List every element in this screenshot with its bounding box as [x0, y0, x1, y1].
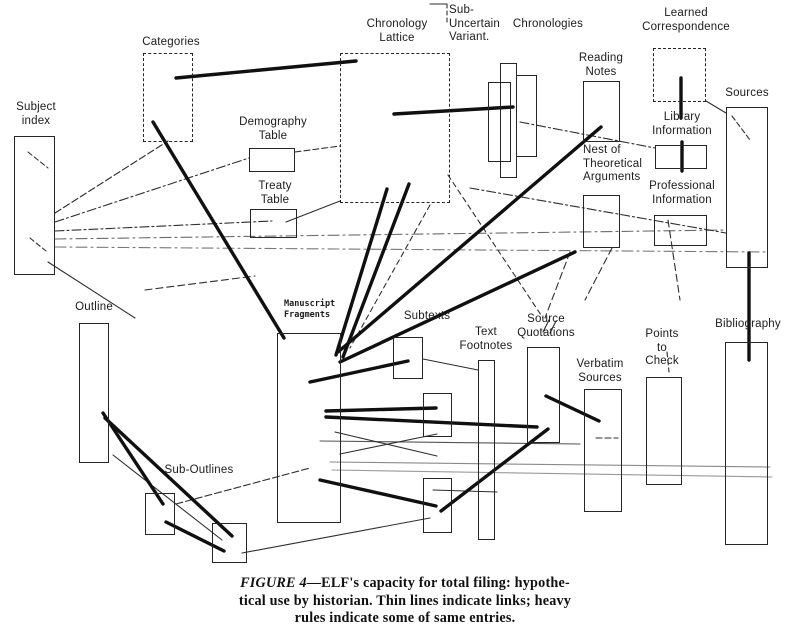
caption-line-1: FIGURE 4—ELF's capacity for total filing…	[168, 575, 642, 593]
categories-label: Categories	[133, 36, 209, 50]
thin-link-line	[55, 158, 249, 222]
reading-notes-label: Reading Notes	[576, 52, 626, 79]
subtexts-box	[423, 393, 452, 437]
nest-of-theoretical-arguments-box	[583, 195, 620, 248]
thin-link-line	[242, 518, 430, 553]
outline-label: Outline	[69, 301, 119, 315]
outline-box	[79, 323, 109, 463]
subtexts-label: Subtexts	[396, 310, 458, 324]
verbatim-sources-label: Verbatim Sources	[570, 358, 630, 385]
source-quotations-box	[527, 347, 560, 443]
bibliography-label: Bibliography	[707, 318, 789, 332]
caption-line-2: tical use by historian. Thin lines indic…	[168, 593, 642, 611]
treaty-table-label: Treaty Table	[230, 180, 320, 207]
chronologies-box	[500, 63, 517, 178]
manuscript-fragments-label: Manuscript Fragments	[284, 299, 344, 322]
nest-of-theoretical-arguments-label: Nest of Theoretical Arguments	[583, 144, 651, 185]
sub-outlines-box	[145, 493, 175, 535]
figure-number-label: FIGURE 4	[240, 575, 307, 591]
learned-correspondence-box	[653, 48, 706, 102]
sub-outlines-box	[212, 523, 247, 563]
manuscript-fragments-box	[277, 333, 341, 523]
library-information-label: Library Information	[645, 111, 719, 138]
sources-label: Sources	[720, 87, 774, 101]
thin-link-line	[295, 146, 340, 152]
bibliography-box	[725, 342, 768, 545]
learned-correspondence-label: Learned Correspondence	[640, 7, 732, 34]
subject-index-label: Subject index	[8, 101, 64, 128]
thin-link-line	[55, 221, 272, 231]
heavy-rule-line	[326, 408, 436, 411]
text-footnotes-box	[478, 360, 495, 540]
heavy-rule-line	[343, 184, 409, 357]
library-information-box	[655, 145, 707, 169]
verbatim-sources-box	[584, 389, 622, 512]
points-to-check-box	[646, 377, 682, 485]
thin-link-line	[332, 470, 772, 477]
professional-information-box	[654, 215, 707, 246]
source-quotations-label: Source Quotations	[512, 313, 580, 340]
treaty-table-box	[250, 209, 297, 238]
sub-uncertain-variant-label: Sub- Uncertain Variant.	[449, 4, 511, 45]
chronologies-box	[516, 75, 537, 157]
thin-link-line	[55, 141, 168, 213]
thin-link-line	[145, 276, 255, 290]
figure-diagram-page: Subject indexCategoriesDemography TableT…	[0, 0, 794, 634]
thin-link-line	[55, 247, 768, 252]
reading-notes-box	[583, 81, 620, 142]
chronologies-label: Chronologies	[510, 18, 586, 32]
chronology-lattice-label: Chronology Lattice	[353, 18, 441, 45]
text-footnotes-label: Text Footnotes	[454, 326, 518, 353]
professional-information-label: Professional Information	[641, 180, 723, 207]
figure-caption: FIGURE 4—ELF's capacity for total filing…	[168, 575, 642, 628]
subtexts-box	[423, 478, 452, 533]
thin-link-line	[330, 462, 770, 467]
thin-link-line	[585, 248, 612, 300]
demography-table-label: Demography Table	[228, 116, 318, 143]
caption-line-3: rules indicate some of same entries.	[168, 610, 642, 628]
sub-outlines-label: Sub-Outlines	[158, 464, 240, 478]
demography-table-box	[249, 148, 295, 172]
categories-box	[143, 53, 193, 142]
caption-line-1-text: —ELF's capacity for total filing: hypoth…	[307, 575, 570, 591]
subject-index-box	[14, 136, 55, 275]
points-to-check-label: Points to Check	[640, 328, 684, 369]
subtexts-box	[393, 337, 423, 379]
chronology-lattice-box	[340, 53, 450, 203]
thin-link-line	[423, 359, 478, 370]
sources-box	[726, 107, 768, 268]
heavy-rule-line	[176, 61, 356, 78]
